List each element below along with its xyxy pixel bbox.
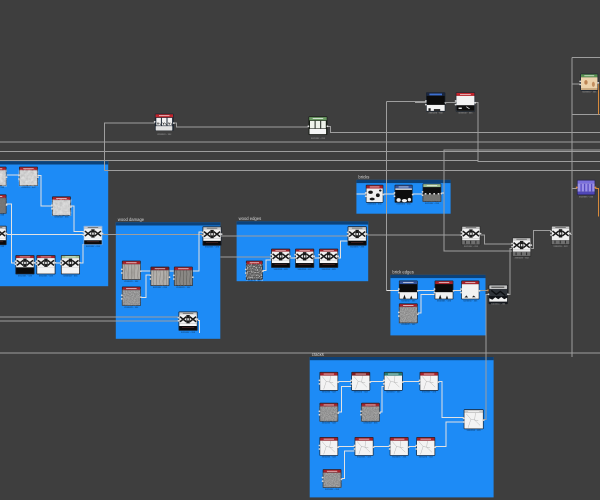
svg-text:xxxxxxx - xxx: xxxxxxx - xxx bbox=[39, 274, 54, 277]
svg-text:xxxxxxx - xxx: xxxxxxx - xxx bbox=[467, 429, 482, 432]
svg-text:xxxxxxx - xxx: xxxxxxx - xxx bbox=[124, 306, 139, 309]
svg-text:xxxxxxx - xxx: xxxxxxx - xxx bbox=[491, 303, 506, 306]
svg-text:xxxxxxx - xxx: xxxxxxx - xxx bbox=[397, 203, 412, 206]
svg-text:xxxxxxx - xxx: xxxxxxx - xxx bbox=[325, 488, 340, 491]
svg-text:xxxxxxx - xxx: xxxxxxx - xxx bbox=[311, 137, 326, 140]
svg-text:xxxxxxx - xxx: xxxxxxx - xxx bbox=[322, 422, 337, 425]
svg-text:xxxxxxx - xxx: xxxxxxx - xxx bbox=[21, 186, 36, 189]
svg-text:xxxxxxx - xxx: xxxxxxx - xxx bbox=[176, 286, 191, 289]
svg-text:xxxxxxx - xxx: xxxxxxx - xxx bbox=[582, 91, 597, 94]
svg-text:xxxxxxx - xxx: xxxxxxx - xxx bbox=[579, 195, 594, 198]
svg-text:xxxxxxx - xxx: xxxxxxx - xxx bbox=[357, 456, 372, 459]
svg-text:xxxxxxx - xxx: xxxxxxx - xxx bbox=[18, 274, 33, 277]
svg-text:xxxxxxx - xxx: xxxxxxx - xxx bbox=[554, 245, 569, 248]
svg-text:bricks: bricks bbox=[358, 175, 369, 180]
svg-text:xxxxxxx - xxx: xxxxxxx - xxx bbox=[425, 202, 440, 205]
svg-text:xxxxxxx - xxx: xxxxxxx - xxx bbox=[458, 112, 473, 115]
svg-text:xxxxxxx - xxx: xxxxxxx - xxx bbox=[298, 268, 313, 271]
svg-text:brick edges: brick edges bbox=[392, 270, 413, 275]
svg-text:xxxxxxx - xxx: xxxxxxx - xxx bbox=[124, 280, 139, 283]
svg-text:xxxxxxx - xxx: xxxxxxx - xxx bbox=[422, 391, 437, 394]
svg-text:xxxxxxx - xxx: xxxxxxx - xxx bbox=[392, 456, 407, 459]
svg-text:xxxxxxx - xxx: xxxxxxx - xxx bbox=[437, 299, 452, 302]
svg-text:xxxxxxx - xxx: xxxxxxx - xxx bbox=[419, 456, 434, 459]
svg-text:xxxxxxx - xxx: xxxxxxx - xxx bbox=[322, 456, 337, 459]
svg-text:xxxxxxx - xxx: xxxxxxx - xxx bbox=[322, 391, 337, 394]
svg-text:xxxxxxx - xxx: xxxxxxx - xxx bbox=[464, 245, 479, 248]
svg-text:xxxxxxx - xxx: xxxxxxx - xxx bbox=[157, 133, 172, 136]
svg-text:xxxxxxx - xxx: xxxxxxx - xxx bbox=[247, 280, 262, 283]
svg-text:xxxxxxx - xxx: xxxxxxx - xxx bbox=[354, 391, 369, 394]
svg-text:xxxxxxx - xxx: xxxxxxx - xxx bbox=[515, 257, 530, 260]
svg-text:xxxxxxx - xxx: xxxxxxx - xxx bbox=[368, 203, 383, 206]
svg-text:xxxxxxx - xxx: xxxxxxx - xxx bbox=[181, 331, 196, 334]
svg-text:xxxxxxx - xxx: xxxxxxx - xxx bbox=[386, 391, 401, 394]
svg-text:xxxxxxx - xxx: xxxxxxx - xxx bbox=[463, 299, 478, 302]
svg-text:xxxxxxx - xxx: xxxxxxx - xxx bbox=[401, 323, 416, 326]
svg-text:xxxxxxx - xxx: xxxxxxx - xxx bbox=[153, 286, 168, 289]
svg-text:xxxxxxx - xxx: xxxxxxx - xxx bbox=[205, 246, 220, 249]
svg-text:xxxxxxx - xxx: xxxxxxx - xxx bbox=[429, 112, 444, 115]
svg-text:xxxxxxx - xxx: xxxxxxx - xxx bbox=[54, 216, 69, 219]
svg-text:xxxxxxx - xxx: xxxxxxx - xxx bbox=[86, 245, 101, 248]
svg-text:wood damage: wood damage bbox=[118, 217, 145, 222]
svg-text:xxxxxxx - xxx: xxxxxxx - xxx bbox=[363, 422, 378, 425]
svg-text:xxxxxxx - xxx: xxxxxxx - xxx bbox=[350, 246, 365, 249]
svg-text:wood edges: wood edges bbox=[239, 216, 262, 221]
svg-text:xxxxxxx - xxx: xxxxxxx - xxx bbox=[401, 299, 416, 302]
svg-text:xxxxxxx - xxx: xxxxxxx - xxx bbox=[274, 268, 289, 271]
svg-text:xxxxxxx - xxx: xxxxxxx - xxx bbox=[63, 274, 78, 277]
svg-text:xxxxxxx - xxx: xxxxxxx - xxx bbox=[322, 268, 337, 271]
